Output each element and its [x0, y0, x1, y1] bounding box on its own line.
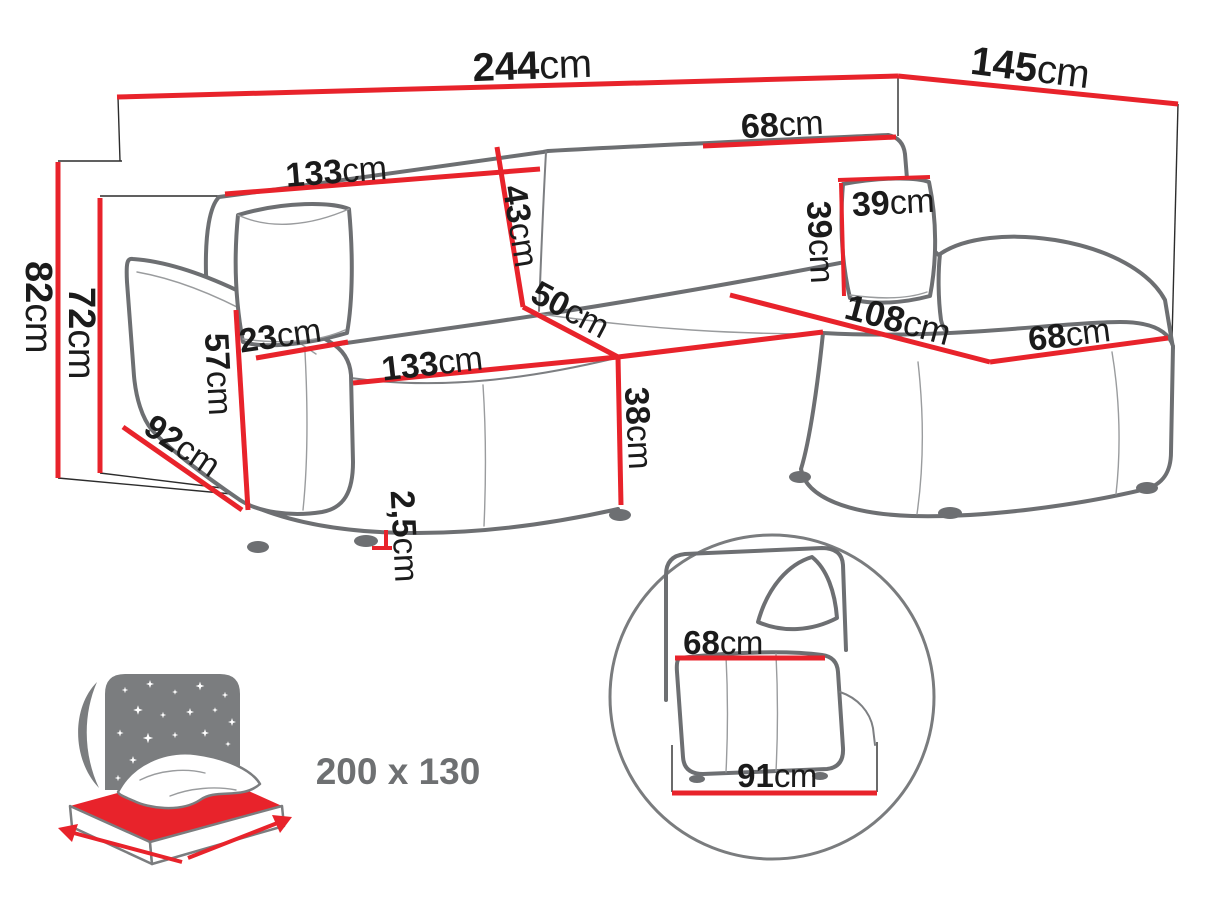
label-total-depth: 145cm [968, 39, 1092, 97]
label-inset-armrest-base: 91cm [737, 757, 817, 794]
label-leg-height: 2,5cm [383, 489, 426, 582]
sleeping-function-icon: 200 x 130 [58, 674, 480, 864]
label-frame-height: 72cm [60, 287, 102, 379]
sofa-dimension-diagram: 244cm 145cm 68cm 133cm 43cm 39cm 39cm 82… [0, 0, 1214, 911]
dimension-line-seat-width-extension [618, 332, 823, 357]
label-backrest-section-width: 68cm [740, 104, 824, 146]
moon-icon [78, 682, 99, 788]
label-cushion-height: 39cm [799, 200, 841, 284]
label-backrest-width: 133cm [284, 149, 388, 195]
label-armrest-height: 57cm [197, 332, 239, 416]
sofa-foot [354, 535, 378, 547]
sofa-foot [789, 471, 811, 483]
sofa-foot [938, 507, 962, 519]
label-sleeping-area: 200 x 130 [316, 751, 481, 792]
label-total-width: 244cm [472, 42, 593, 90]
label-seat-height: 38cm [617, 386, 659, 470]
inset-foot [689, 775, 705, 783]
label-cushion-width: 39cm [851, 182, 935, 224]
ref-line-right [1172, 104, 1178, 340]
armrest-detail-inset: 68cm 91cm [610, 535, 934, 859]
sofa-foot [609, 509, 631, 521]
label-total-height: 82cm [17, 261, 59, 353]
seat-front-seam [483, 385, 485, 526]
sofa-foot [1136, 482, 1158, 494]
ref-line-left-top [118, 97, 120, 161]
label-inset-armrest-top: 68cm [683, 624, 763, 661]
sofa-foot [247, 541, 269, 553]
